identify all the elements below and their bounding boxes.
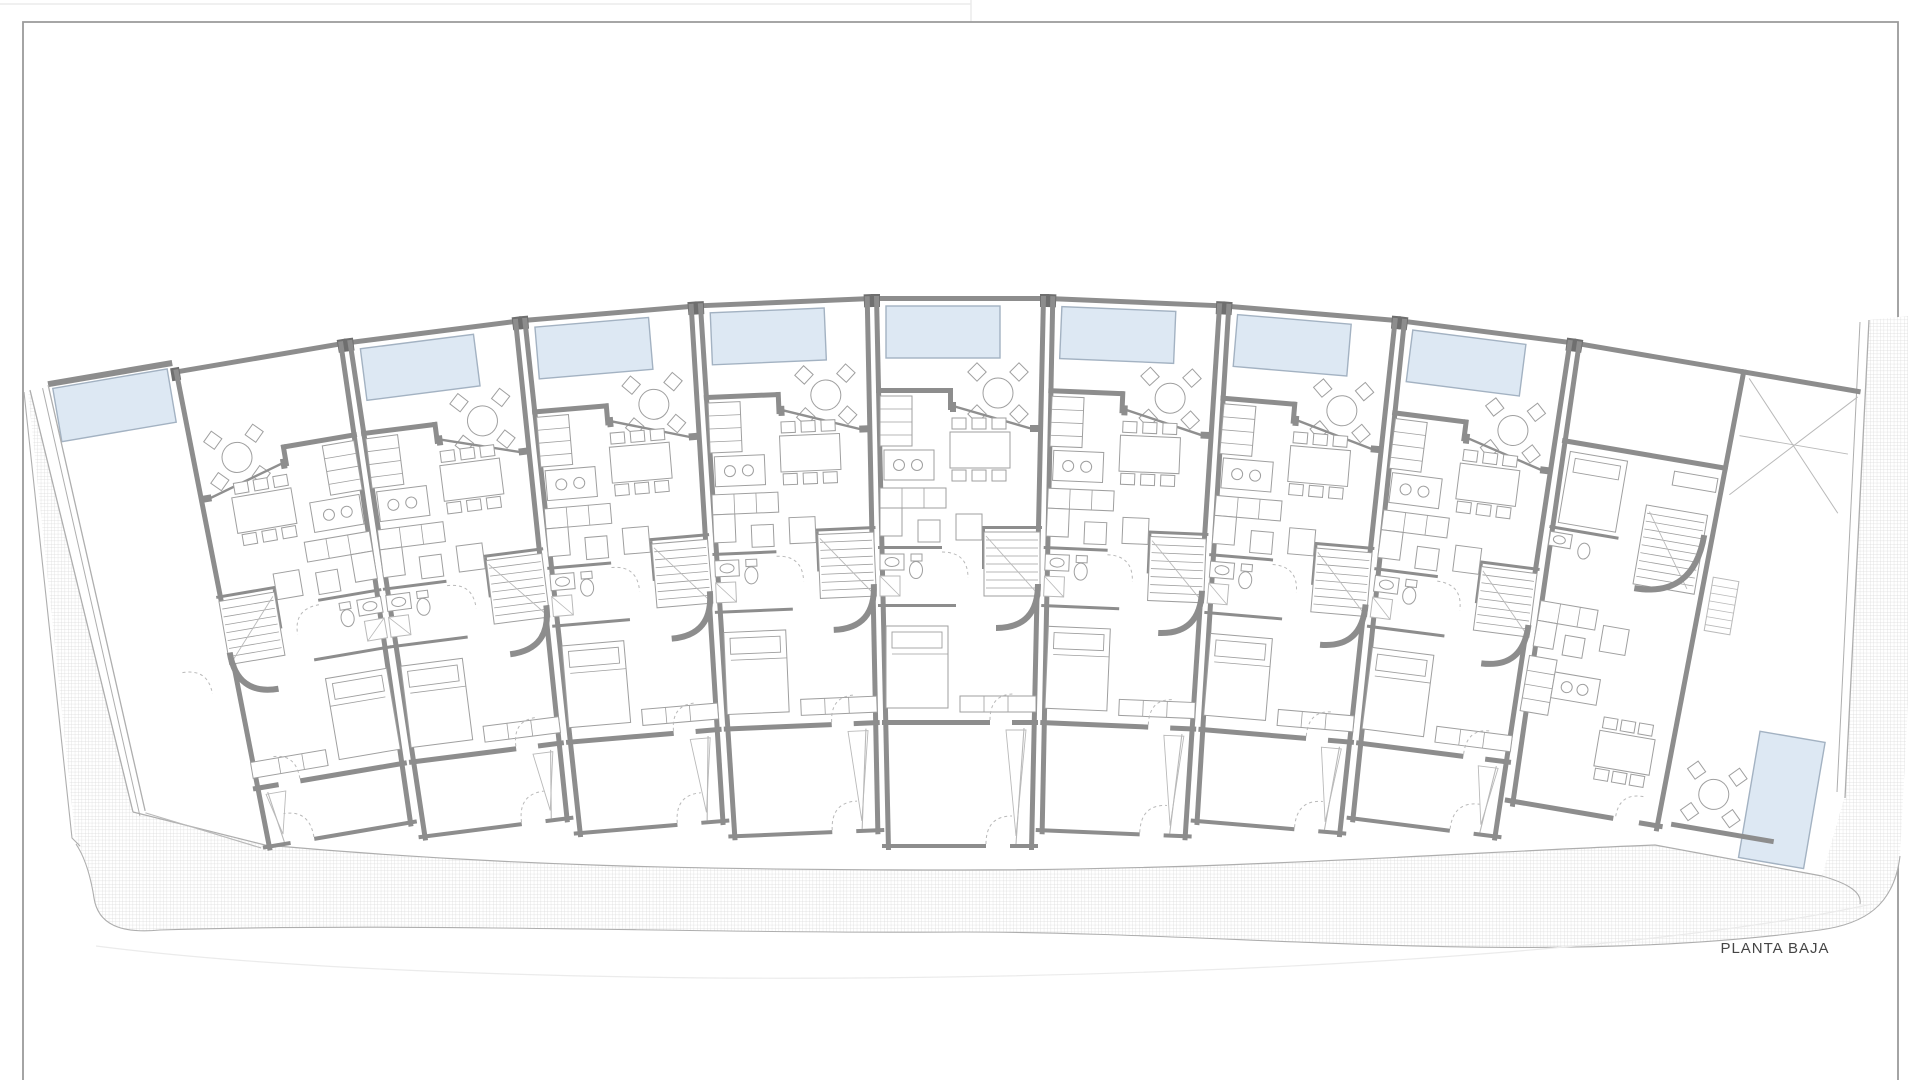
garden-wall [696,296,872,308]
drawing-sheet: PLANTA BAJA [0,0,1920,1080]
unit-2 [344,316,585,842]
pool [1739,731,1826,868]
pool [710,308,826,365]
plan-title: PLANTA BAJA [1690,940,1860,957]
floor-plan-drawing [0,0,1920,1080]
unit-6 [1025,294,1226,841]
unit-8 [1335,316,1576,842]
pool [360,334,480,400]
pool [535,317,653,378]
garden-wall [171,341,345,376]
pool [1233,315,1351,376]
pool [1060,307,1176,364]
unit-9 [1493,338,1885,868]
garden-wall [1574,341,1861,395]
unit-4 [695,294,896,841]
pool [1406,330,1526,396]
pool [886,306,1000,358]
unit-5 [871,294,1049,850]
garden-wall [872,296,1048,301]
